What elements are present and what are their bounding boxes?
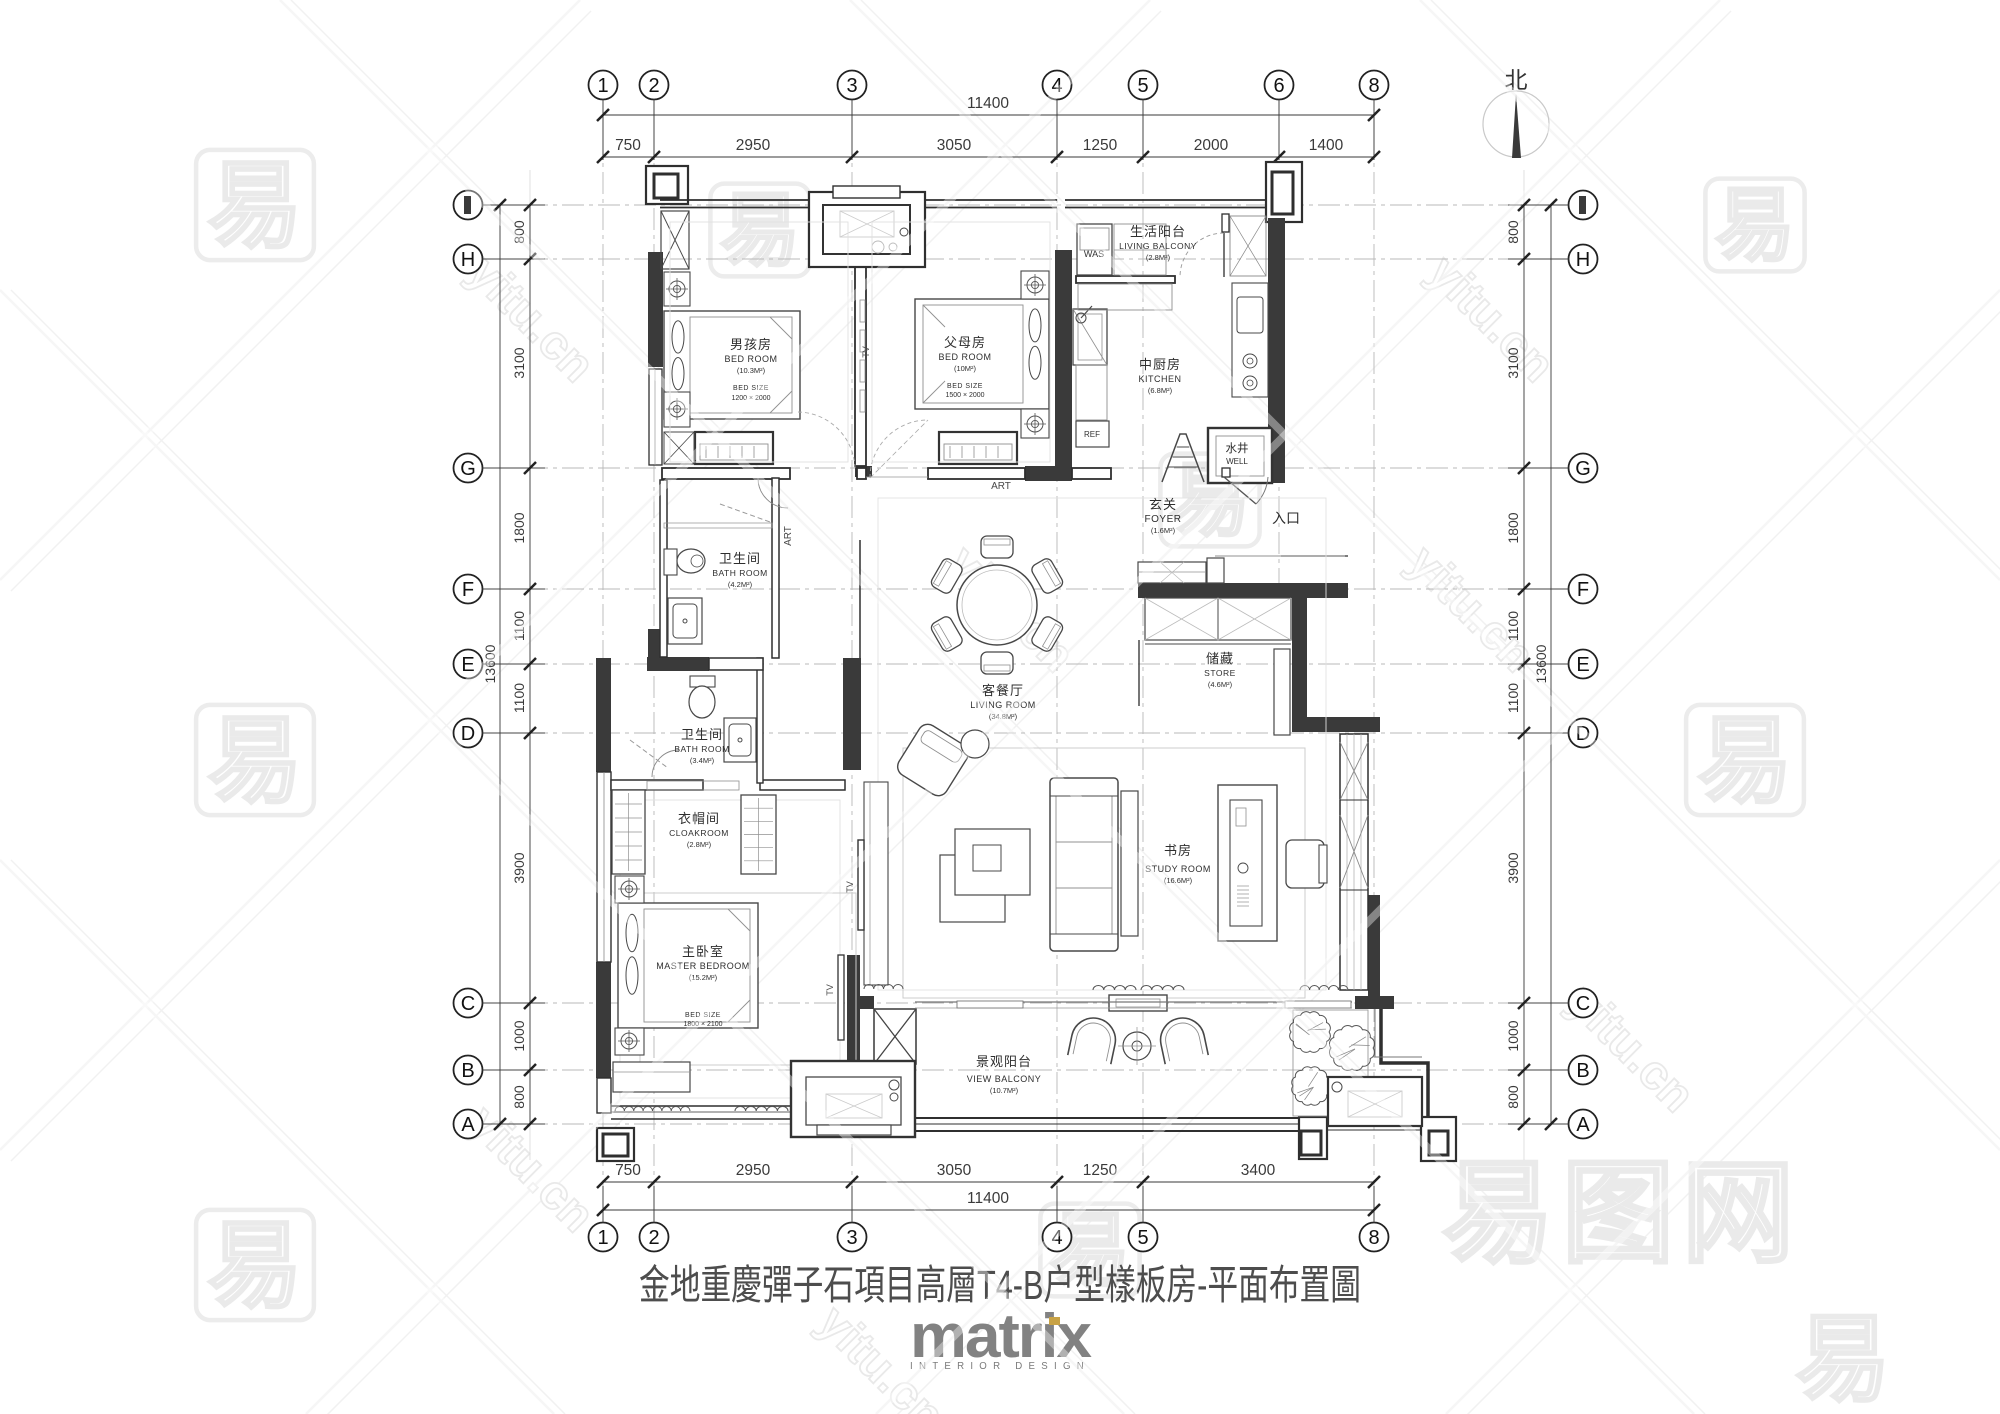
svg-text:2000: 2000 <box>1194 137 1229 154</box>
svg-text:(4.6M²): (4.6M²) <box>1208 680 1233 689</box>
svg-text:8: 8 <box>1368 1227 1379 1249</box>
svg-text:1500 × 2000: 1500 × 2000 <box>945 392 984 399</box>
svg-text:1100: 1100 <box>1505 611 1521 641</box>
svg-text:B: B <box>1576 1060 1589 1082</box>
svg-text:BATH ROOM: BATH ROOM <box>712 568 767 578</box>
svg-text:750: 750 <box>615 137 641 154</box>
svg-text:3100: 3100 <box>1505 347 1521 378</box>
svg-text:3: 3 <box>846 1227 857 1249</box>
svg-text:BED ROOM: BED ROOM <box>938 352 991 362</box>
svg-text:ART: ART <box>991 481 1011 492</box>
svg-text:衣帽间: 衣帽间 <box>678 811 720 826</box>
svg-text:易: 易 <box>1697 708 1792 814</box>
svg-text:(6.8M²): (6.8M²) <box>1148 386 1173 395</box>
svg-text:易: 易 <box>207 153 302 259</box>
svg-text:(2.8M²): (2.8M²) <box>1146 253 1171 262</box>
svg-text:6: 6 <box>1273 75 1284 97</box>
svg-text:H: H <box>461 249 475 271</box>
svg-text:易: 易 <box>207 1213 302 1319</box>
svg-text:800: 800 <box>1505 1085 1521 1109</box>
svg-text:BED SIZE: BED SIZE <box>947 383 983 390</box>
svg-text:1000: 1000 <box>1505 1020 1521 1051</box>
svg-text:2: 2 <box>648 75 659 97</box>
svg-text:LIVING BALCONY: LIVING BALCONY <box>1119 241 1197 251</box>
svg-text:A: A <box>1576 1114 1590 1136</box>
svg-text:C: C <box>461 993 475 1015</box>
svg-text:TV: TV <box>825 984 835 996</box>
svg-text:(10M²): (10M²) <box>954 364 977 373</box>
svg-text:1: 1 <box>597 1227 608 1249</box>
svg-text:中厨房: 中厨房 <box>1139 357 1181 372</box>
svg-text:2: 2 <box>648 1227 659 1249</box>
svg-text:13600: 13600 <box>1533 644 1549 683</box>
svg-text:E: E <box>1576 654 1589 676</box>
svg-text:CLOAKROOM: CLOAKROOM <box>669 828 729 838</box>
svg-text:FOYER: FOYER <box>1145 514 1182 525</box>
svg-text:生活阳台: 生活阳台 <box>1130 224 1186 239</box>
svg-text:800: 800 <box>1505 220 1521 244</box>
svg-text:(10.3M²): (10.3M²) <box>737 366 766 375</box>
svg-text:G: G <box>460 458 476 480</box>
svg-text:TV: TV <box>861 346 871 358</box>
svg-text:1800: 1800 <box>1505 512 1521 543</box>
svg-text:750: 750 <box>615 1162 641 1179</box>
svg-text:3900: 3900 <box>511 852 527 883</box>
svg-text:1100: 1100 <box>1505 683 1521 713</box>
svg-text:REF: REF <box>1084 430 1100 439</box>
svg-text:卫生间: 卫生间 <box>681 727 723 742</box>
svg-text:易: 易 <box>207 708 302 814</box>
svg-text:B: B <box>461 1060 474 1082</box>
svg-text:1400: 1400 <box>1309 137 1344 154</box>
svg-text:3400: 3400 <box>1241 1162 1276 1179</box>
svg-text:11400: 11400 <box>967 95 1009 112</box>
svg-text:3050: 3050 <box>937 1162 972 1179</box>
svg-text:父母房: 父母房 <box>944 335 986 350</box>
svg-text:1250: 1250 <box>1083 137 1118 154</box>
svg-text:ART: ART <box>783 526 794 546</box>
svg-text:BED ROOM: BED ROOM <box>724 354 777 364</box>
svg-text:INTERIOR DESIGN: INTERIOR DESIGN <box>910 1361 1090 1372</box>
svg-text:5: 5 <box>1137 1227 1148 1249</box>
svg-text:2950: 2950 <box>736 137 771 154</box>
svg-text:储藏: 储藏 <box>1206 651 1234 666</box>
svg-text:3900: 3900 <box>1505 852 1521 883</box>
svg-text:1800: 1800 <box>511 512 527 543</box>
svg-text:入口: 入口 <box>1272 510 1300 526</box>
svg-text:1: 1 <box>597 75 608 97</box>
svg-text:H: H <box>1576 249 1590 271</box>
svg-text:主卧室: 主卧室 <box>682 944 724 959</box>
svg-text:玄关: 玄关 <box>1149 497 1177 512</box>
svg-text:VIEW BALCONY: VIEW BALCONY <box>967 1074 1042 1084</box>
svg-text:F: F <box>462 579 474 601</box>
svg-text:卫生间: 卫生间 <box>719 551 761 566</box>
svg-text:(1.6M²): (1.6M²) <box>1151 526 1176 535</box>
svg-text:A: A <box>461 1114 475 1136</box>
svg-text:F: F <box>1577 579 1589 601</box>
svg-text:KITCHEN: KITCHEN <box>1138 374 1181 384</box>
svg-text:8: 8 <box>1368 75 1379 97</box>
svg-text:1100: 1100 <box>511 683 527 713</box>
svg-text:800: 800 <box>511 1085 527 1109</box>
svg-text:D: D <box>461 723 475 745</box>
svg-text:5: 5 <box>1137 75 1148 97</box>
svg-text:11400: 11400 <box>967 1190 1009 1207</box>
svg-text:男孩房: 男孩房 <box>730 337 772 352</box>
svg-text:BATH ROOM: BATH ROOM <box>674 744 729 754</box>
svg-text:3050: 3050 <box>937 137 972 154</box>
svg-text:3: 3 <box>846 75 857 97</box>
svg-text:C: C <box>1576 993 1590 1015</box>
svg-text:TV: TV <box>845 881 855 893</box>
svg-text:(3.4M²): (3.4M²) <box>690 756 715 765</box>
svg-text:STORE: STORE <box>1204 668 1236 678</box>
svg-text:WELL: WELL <box>1226 457 1248 466</box>
svg-text:客餐厅: 客餐厅 <box>982 683 1024 698</box>
svg-text:景观阳台: 景观阳台 <box>976 1054 1032 1069</box>
svg-text:水井: 水井 <box>1226 441 1249 455</box>
svg-text:书房: 书房 <box>1164 843 1192 858</box>
svg-text:1000: 1000 <box>511 1020 527 1051</box>
svg-text:易: 易 <box>1715 181 1795 270</box>
svg-text:(2.8M²): (2.8M²) <box>687 840 712 849</box>
svg-text:(10.7M²): (10.7M²) <box>990 1086 1019 1095</box>
svg-text:3100: 3100 <box>511 347 527 378</box>
svg-text:易: 易 <box>1795 1307 1890 1413</box>
svg-text:2950: 2950 <box>736 1162 771 1179</box>
svg-text:(4.2M²): (4.2M²) <box>728 580 753 589</box>
svg-text:G: G <box>1575 458 1591 480</box>
